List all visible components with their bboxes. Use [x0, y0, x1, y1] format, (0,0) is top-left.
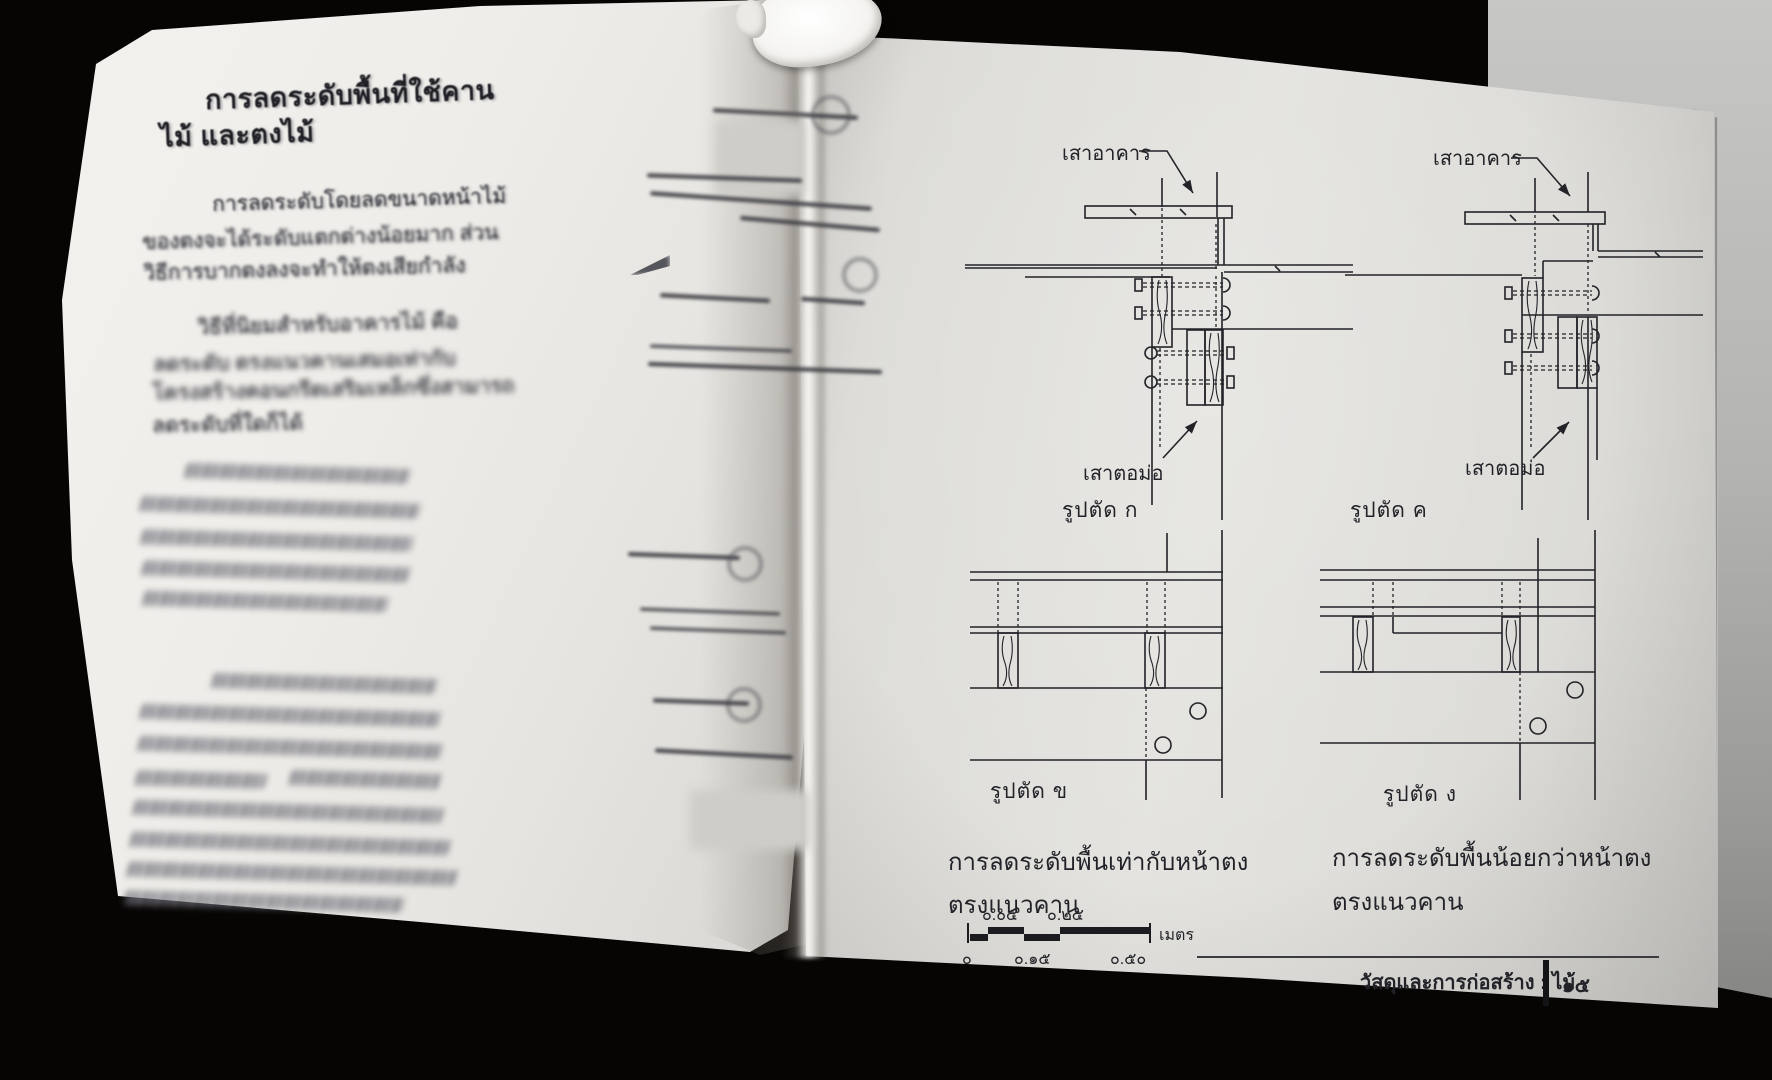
- footer-divider: [1543, 960, 1549, 1006]
- page-number: ๑๕: [1562, 969, 1590, 1001]
- figure-description-line: ตรงแนวคาน: [1332, 882, 1463, 921]
- scale-tick: [967, 923, 969, 943]
- paragraph-line: วิธีที่นิยมสำหรับอาคารไม้ คือ: [197, 305, 458, 344]
- scale-unit: เมตร: [1159, 923, 1194, 948]
- scale-label: ๐.๒๕: [1047, 903, 1084, 928]
- figure-section-kho: [945, 530, 1345, 810]
- figure-section-kh: เสาอาคาร เสาตอม่อ: [1285, 120, 1705, 535]
- foundation-post-label: เสาตอม่อ: [1465, 458, 1545, 480]
- building-column-label: เสาอาคาร: [1062, 143, 1151, 165]
- scale-label: ๐.๕๐: [1110, 947, 1146, 972]
- scale-label: ๐.๐๕: [982, 903, 1018, 928]
- scale-label: ๐: [962, 947, 972, 972]
- figure-caption: รูปตัด ง: [1383, 778, 1457, 811]
- blurred-figure-callout: [728, 547, 762, 581]
- scale-tick: [1149, 923, 1151, 943]
- scale-label: ๐.๑๕: [1014, 947, 1050, 972]
- figure-description-line: การลดระดับพื้นเท่ากับหน้าตง: [948, 842, 1248, 881]
- scale-segment: [1024, 934, 1060, 941]
- scale-bar: ๐.๐๕ ๐.๒๕ เมตร ๐ ๐.๑๕ ๐.๕๐: [952, 903, 1222, 967]
- tissue-paper-fold: [736, 0, 766, 38]
- book-photo: การลดระดับพื้นที่ใช้คาน ไม้ และตงไม้ การ…: [0, 0, 1772, 1080]
- scale-segment: [988, 927, 1024, 934]
- figure-description-line: การลดระดับพื้นน้อยกว่าหน้าตง: [1332, 838, 1651, 877]
- building-column-label: เสาอาคาร: [1433, 148, 1522, 170]
- figure-caption: รูปตัด ค: [1350, 494, 1428, 527]
- figure-caption: รูปตัด ก: [1062, 494, 1138, 527]
- footer-rule: [1197, 956, 1659, 958]
- blurred-figure-shape: [690, 790, 810, 850]
- scale-segment: [970, 934, 988, 941]
- scale-segment: [1060, 927, 1149, 934]
- figure-caption: รูปตัด ข: [990, 775, 1068, 808]
- figure-section-ngo: [1320, 530, 1720, 810]
- foundation-post-label: เสาตอม่อ: [1083, 463, 1163, 485]
- blurred-figure-callout: [843, 258, 877, 292]
- paragraph-line: ลดระดับที่ใดก็ได้: [152, 407, 303, 443]
- left-heading-line2: ไม้ และตงไม้: [159, 110, 315, 158]
- blurred-figure-shape: [715, 120, 805, 195]
- blurred-figure-callout: [812, 96, 850, 134]
